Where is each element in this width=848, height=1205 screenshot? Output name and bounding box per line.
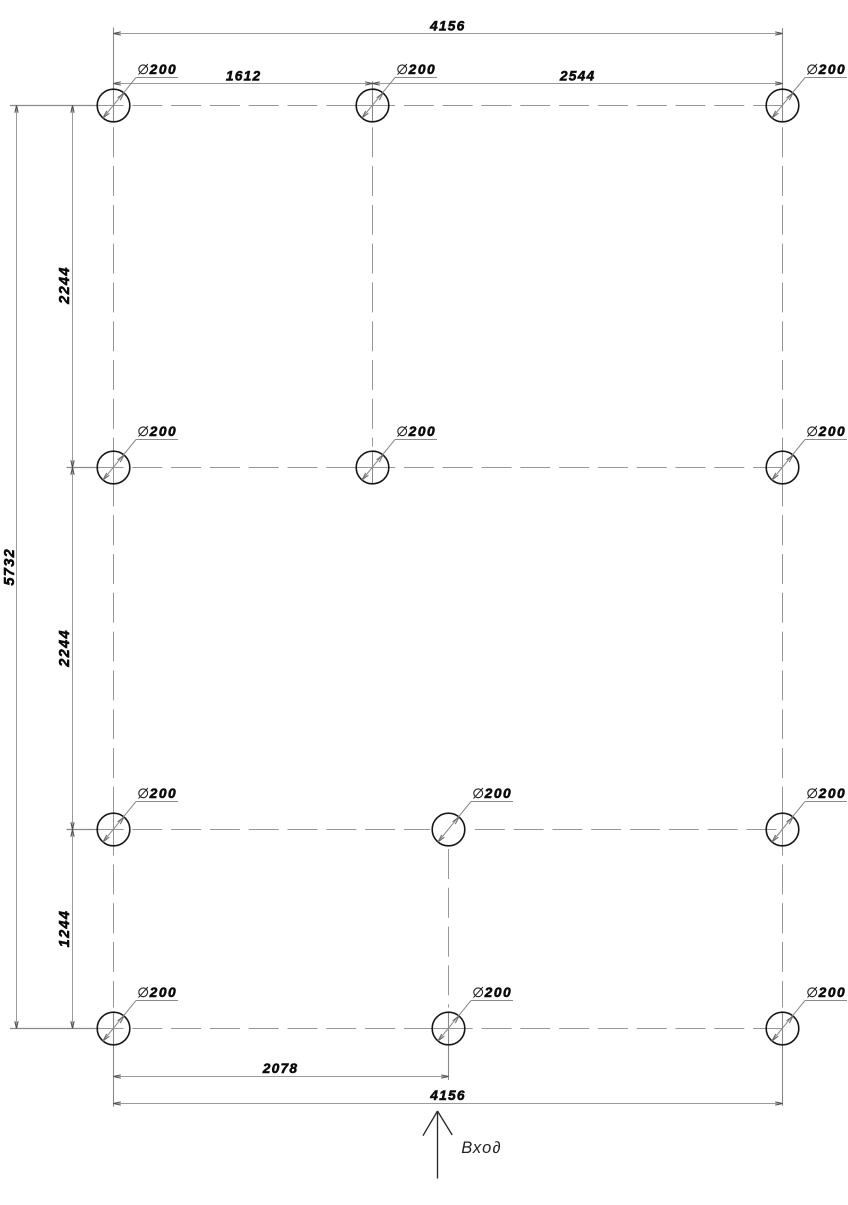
svg-text:200: 200 [149, 424, 178, 439]
svg-text:200: 200 [408, 62, 437, 77]
svg-text:200: 200 [818, 985, 847, 1000]
svg-text:200: 200 [484, 786, 513, 801]
svg-text:2244: 2244 [57, 629, 73, 668]
svg-text:2078: 2078 [262, 1061, 299, 1076]
svg-text:200: 200 [484, 985, 513, 1000]
svg-text:200: 200 [818, 62, 847, 77]
svg-text:4156: 4156 [429, 1088, 466, 1103]
svg-text:1612: 1612 [226, 69, 262, 84]
svg-text:2244: 2244 [57, 266, 73, 305]
svg-text:200: 200 [149, 786, 178, 801]
svg-text:Вхо∂: Вхо∂ [461, 1139, 502, 1157]
svg-text:200: 200 [149, 62, 178, 77]
svg-text:200: 200 [408, 424, 437, 439]
svg-text:200: 200 [818, 424, 847, 439]
svg-text:2544: 2544 [559, 69, 596, 84]
svg-text:200: 200 [149, 985, 178, 1000]
svg-text:4156: 4156 [429, 19, 466, 34]
svg-text:200: 200 [818, 786, 847, 801]
svg-text:5732: 5732 [2, 548, 18, 586]
svg-text:1244: 1244 [57, 910, 73, 948]
